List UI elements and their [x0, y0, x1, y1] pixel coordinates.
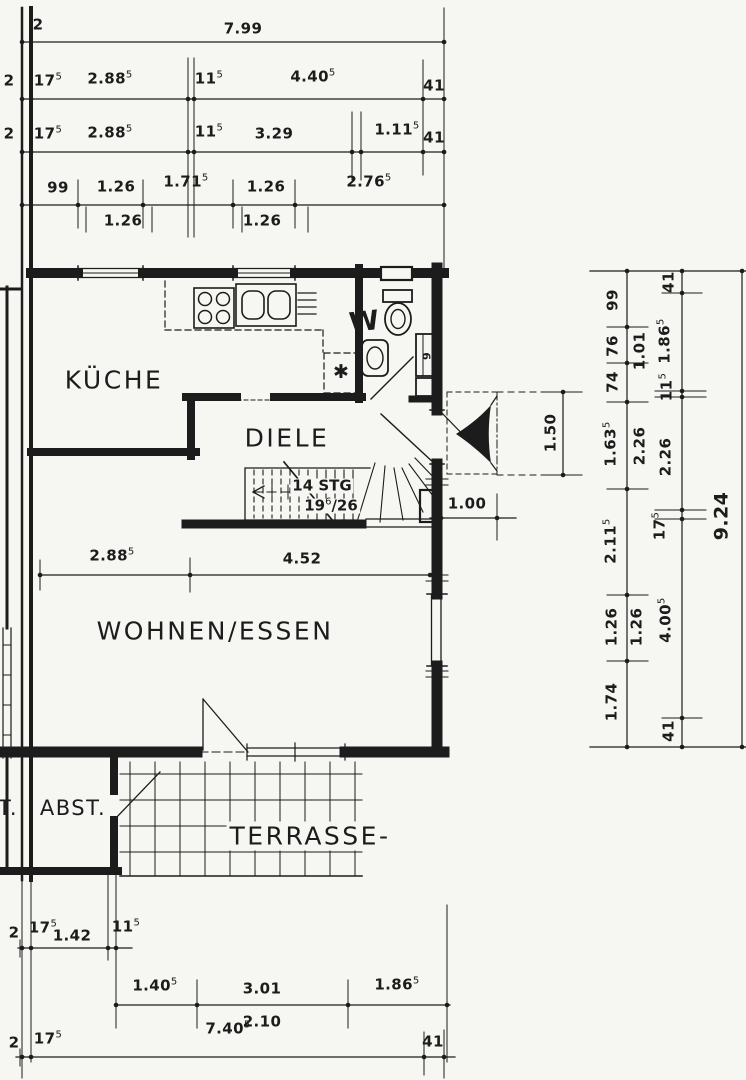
dim-label: 2.115 [604, 518, 619, 563]
dim-label: 175 [34, 74, 62, 89]
dim-label: 115 [195, 72, 223, 87]
dim-label: 41 [423, 131, 445, 146]
dim-label: 2 [9, 1036, 20, 1051]
stair-ratio-label: 196/26 [302, 499, 360, 514]
dim-label: 4.405 [290, 70, 335, 85]
dim-label: 1.26 [243, 214, 282, 229]
stair-count-label: 14 STG [290, 479, 353, 494]
dim-label: 1.26 [630, 608, 645, 647]
dim-label: 99 [606, 289, 621, 311]
dim-label: 1.865 [374, 978, 419, 993]
dim-label: 41 [422, 1035, 444, 1050]
dim-label: 1.01 [633, 332, 648, 371]
dim-label: 175 [34, 1032, 62, 1047]
dim-label: 175 [34, 127, 62, 142]
dim-label: 1.00 [448, 497, 487, 512]
dim-label: 76 [606, 335, 621, 357]
dim-label: 3.01 [243, 982, 282, 997]
dim-label: 1.26 [104, 214, 143, 229]
dim-label: 7.99 [224, 22, 263, 37]
closet-label: 9 [422, 352, 433, 360]
room-label-neighbor-clipped: T. [0, 796, 18, 820]
dim-label: 1.74 [605, 683, 620, 722]
floor-plan-page: 2 7.99 2 175 2.885 115 4.405 41 2 175 2.… [0, 0, 746, 1080]
dim-label: 2.26 [659, 438, 674, 477]
dim-label: 1.26 [97, 180, 136, 195]
dim-label: 2 [33, 18, 44, 33]
dim-label: 3.29 [255, 127, 294, 142]
dim-label: 99 [47, 181, 69, 196]
dim-label: 1.26 [247, 180, 286, 195]
dim-label: 2 [9, 926, 20, 941]
room-label-kueche: KÜCHE [65, 366, 164, 395]
dim-label: 2.26 [633, 427, 648, 466]
dim-label: 41 [423, 79, 445, 94]
dim-label: 9.24 [713, 492, 732, 540]
dim-label: 4.005 [659, 597, 674, 642]
dim-label: 1.42 [53, 929, 92, 944]
room-label-terrasse: TERRASSE- [227, 822, 394, 851]
dim-label: 115 [195, 125, 223, 140]
room-label-abstellraum: ABST. [40, 796, 106, 820]
dim-label: 1.50 [544, 414, 559, 453]
dim-label: 2.885 [87, 72, 132, 87]
dim-label: 175 [653, 512, 668, 540]
asterisk-symbol: ✱ [333, 361, 349, 383]
room-label-diele: DIELE [245, 424, 330, 453]
dim-label: 1.865 [658, 318, 673, 363]
dim-label: 1.405 [132, 979, 177, 994]
dim-label: 7.405 [205, 1022, 250, 1037]
dim-label: 41 [662, 271, 677, 293]
dim-label: 41 [662, 720, 677, 742]
dim-label: 1.115 [374, 123, 419, 138]
dim-label: 4.52 [283, 552, 322, 567]
dim-label: 2.885 [87, 126, 132, 141]
dim-label: 2 [4, 127, 15, 142]
dim-label: 115 [112, 920, 140, 935]
dim-label: 1.715 [163, 175, 208, 190]
dim-label: 1.635 [604, 421, 619, 466]
room-label-wc: W [348, 305, 381, 339]
dim-label: 1.26 [605, 608, 620, 647]
dim-label: 115 [660, 373, 675, 401]
dim-label: 2 [4, 74, 15, 89]
dim-label: 74 [606, 371, 621, 393]
dim-label: 2.885 [89, 549, 134, 564]
dim-label: 2.765 [346, 175, 391, 190]
room-label-wohnen-essen: WOHNEN/ESSEN [97, 617, 334, 646]
